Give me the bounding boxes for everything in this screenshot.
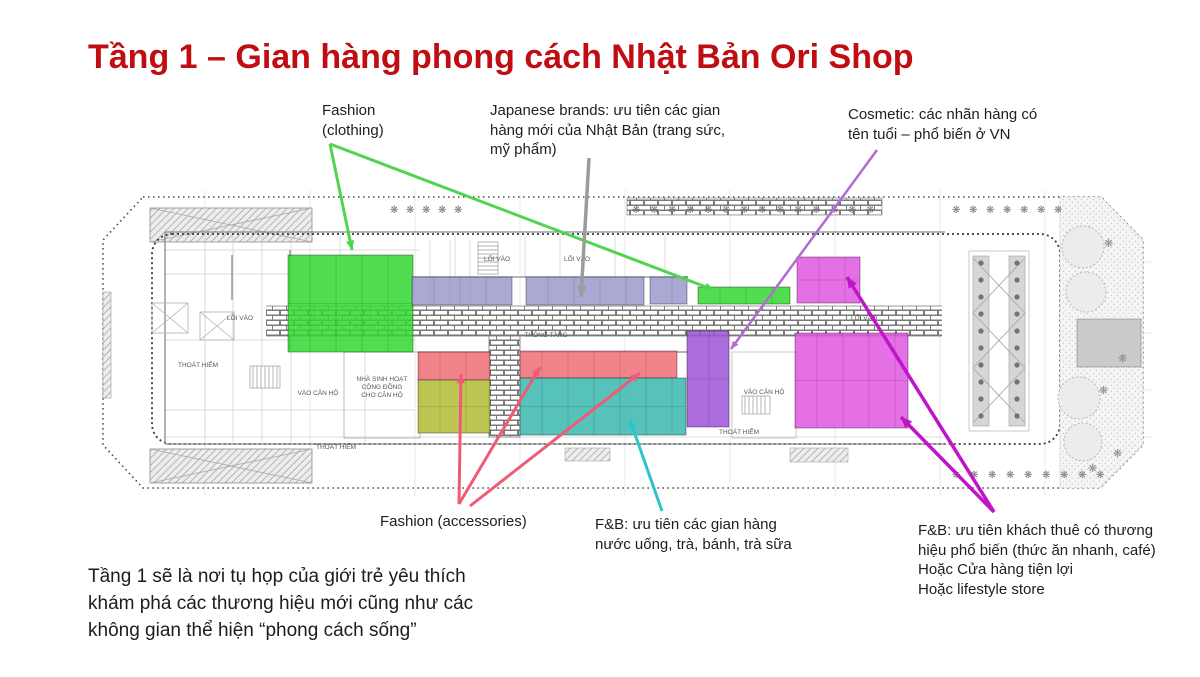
plant-icon xyxy=(978,413,983,418)
plan-label: THOÁT HIỂM xyxy=(719,427,759,436)
fashion-accessories-red-zone xyxy=(418,352,490,380)
tree-icon xyxy=(1062,226,1104,268)
plant-icon: ❋ xyxy=(1078,470,1086,481)
fashion-clothing-note: Fashion (clothing) xyxy=(322,101,482,140)
plant-icon: ❋ xyxy=(740,205,748,216)
fnb-brand-note: F&B: ưu tiên khách thuê có thương hiệu p… xyxy=(918,521,1188,599)
plant-icon xyxy=(1014,413,1019,418)
plant-icon: ❋ xyxy=(1020,205,1028,216)
plant-icon: ❋ xyxy=(969,205,977,216)
plant-icon xyxy=(978,379,983,384)
japanese-brands-zone xyxy=(412,277,512,305)
tree-icon xyxy=(1066,272,1106,312)
plant-icon: ❋ xyxy=(986,205,994,216)
plant-icon: ❋ xyxy=(758,205,766,216)
slide: ❋❋❋❋❋❋❋❋❋❋❋❋❋❋❋❋❋❋❋❋❋❋❋❋❋❋❋❋❋❋❋❋❋❋❋❋❋❋❋❋… xyxy=(0,0,1200,677)
plan-label: VÀO CĂN HỘ xyxy=(744,387,785,396)
plant-icon xyxy=(1014,379,1019,384)
plant-icon: ❋ xyxy=(1118,353,1127,365)
plant-icon: ❋ xyxy=(438,205,446,216)
cosmetic-zone xyxy=(687,331,729,427)
plant-icon: ❋ xyxy=(776,205,784,216)
tree-icon xyxy=(1064,423,1102,461)
japanese-brands-arrow xyxy=(577,158,589,297)
landscape-right xyxy=(1058,197,1143,488)
plant-icon: ❋ xyxy=(812,205,820,216)
plan-label: NHÀ SINH HOẠTCỘNG ĐỒNGCHO CĂN HỘ xyxy=(357,374,408,399)
plant-icon xyxy=(1014,277,1019,282)
tree-icon xyxy=(1058,377,1100,419)
japanese-brands-zone xyxy=(650,277,687,304)
plant-icon: ❋ xyxy=(1099,385,1108,397)
plant-icon: ❋ xyxy=(866,205,874,216)
plant-icon: ❋ xyxy=(668,205,676,216)
plant-icon xyxy=(978,277,983,282)
plant-icon xyxy=(1014,396,1019,401)
xbox-glyphs xyxy=(152,303,234,340)
plant-icon xyxy=(1014,345,1019,350)
plant-icon xyxy=(1014,362,1019,367)
plant-icon: ❋ xyxy=(988,470,996,481)
fashion-accessories-olive-zone xyxy=(418,380,490,433)
plant-icon: ❋ xyxy=(1006,470,1014,481)
fashion-accessories-red-zone xyxy=(520,351,677,378)
plant-icon xyxy=(1014,311,1019,316)
plant-icon: ❋ xyxy=(1104,238,1113,250)
plant-icon: ❋ xyxy=(1088,463,1097,475)
plan-label: VÀO CĂN HỘ xyxy=(298,388,339,397)
plant-icon: ❋ xyxy=(1024,470,1032,481)
plan-label: LỐI VÀO xyxy=(227,312,253,322)
pergola xyxy=(969,251,1029,431)
plant-icon xyxy=(978,311,983,316)
plant-icon xyxy=(978,396,983,401)
plant-icon xyxy=(978,260,983,265)
plant-icon: ❋ xyxy=(686,205,694,216)
plant-icon xyxy=(1014,260,1019,265)
plant-icon: ❋ xyxy=(1042,470,1050,481)
plant-icon xyxy=(1014,294,1019,299)
plant-icon: ❋ xyxy=(632,205,640,216)
fashion-accessories-note: Fashion (accessories) xyxy=(380,512,590,532)
fnb-kiosk-zone xyxy=(520,378,686,435)
plan-label: THOÁT HIỂM xyxy=(316,442,356,451)
japanese-brands-note: Japanese brands: ưu tiên các gian hàng m… xyxy=(490,101,755,160)
plant-icon xyxy=(978,362,983,367)
plant-icon: ❋ xyxy=(1054,205,1062,216)
plant-icon xyxy=(1014,328,1019,333)
page-title: Tầng 1 – Gian hàng phong cách Nhật Bản O… xyxy=(88,38,988,76)
plant-icon xyxy=(978,345,983,350)
plant-icon: ❋ xyxy=(1096,470,1104,481)
plant-icon xyxy=(978,294,983,299)
plant-icon: ❋ xyxy=(1003,205,1011,216)
plant-icon: ❋ xyxy=(650,205,658,216)
footer-text: Tầng 1 sẽ là nơi tụ họp của giới trẻ yêu… xyxy=(88,563,508,644)
plant-icon: ❋ xyxy=(1113,448,1122,460)
plant-icon: ❋ xyxy=(722,205,730,216)
japanese-brands-zone xyxy=(526,277,644,305)
fnb-kiosk-note: F&B: ưu tiên các gian hàng nước uống, tr… xyxy=(595,515,830,554)
plant-icon: ❋ xyxy=(794,205,802,216)
zones-layer xyxy=(288,255,908,435)
plant-icon: ❋ xyxy=(952,205,960,216)
plant-icon xyxy=(978,328,983,333)
plant-icon: ❋ xyxy=(406,205,414,216)
plan-label: THOÁT HIỂM xyxy=(178,360,218,369)
plant-icon: ❋ xyxy=(454,205,462,216)
plant-icon: ❋ xyxy=(390,205,398,216)
plant-icon: ❋ xyxy=(704,205,712,216)
plant-icon: ❋ xyxy=(422,205,430,216)
fashion-clothing-zone xyxy=(288,255,413,352)
plant-icon: ❋ xyxy=(848,205,856,216)
plant-icon: ❋ xyxy=(1037,205,1045,216)
plant-icon: ❋ xyxy=(1060,470,1068,481)
plan-label: LỐI VÀO xyxy=(564,253,590,263)
cosmetic-note: Cosmetic: các nhãn hàng có tên tuổi – ph… xyxy=(848,105,1098,144)
